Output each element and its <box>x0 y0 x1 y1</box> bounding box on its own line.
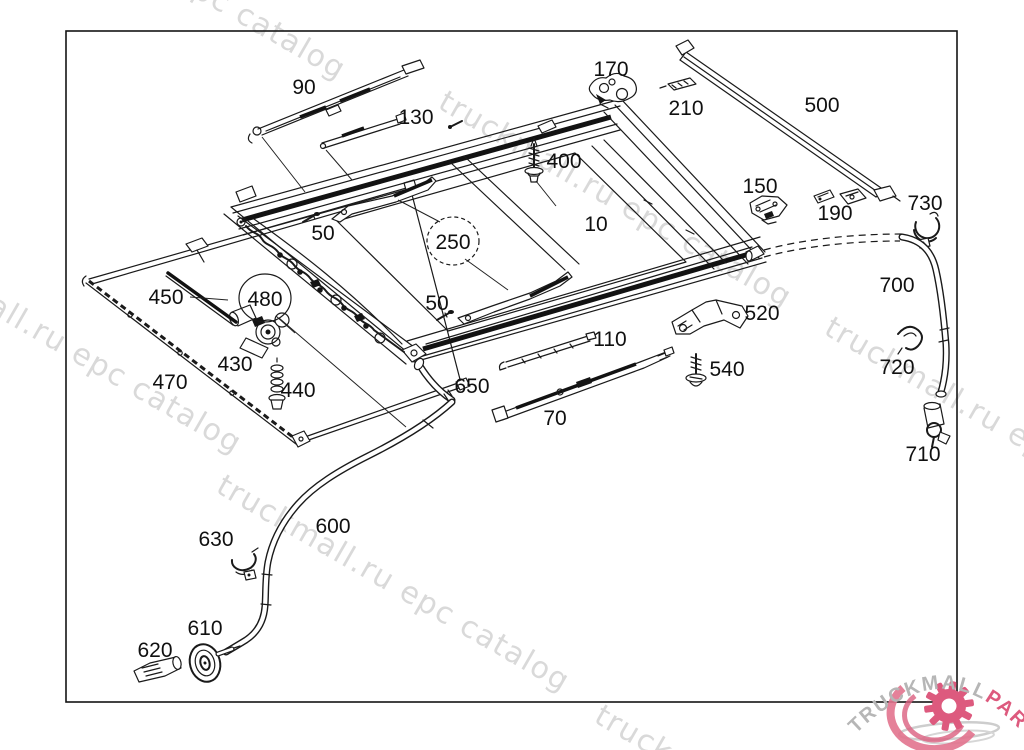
part-720-clip <box>898 327 922 354</box>
exploded-diagram: 90 130 170 210 500 400 150 190 730 10 50… <box>0 0 1024 750</box>
part-520-bracket <box>672 300 748 334</box>
label-170: 170 <box>593 58 628 81</box>
logo-text-accent: PARTS <box>0 0 1024 733</box>
part-430-motor <box>228 305 289 358</box>
parts-catalog-page: truckmall.ru epc catalog truckmall.ru ep… <box>0 0 1024 750</box>
label-400: 400 <box>546 150 581 173</box>
label-470: 470 <box>152 371 187 394</box>
label-720: 720 <box>879 356 914 379</box>
label-480: 480 <box>247 288 282 311</box>
label-50-upper: 50 <box>311 222 334 245</box>
part-130-rail <box>321 113 407 149</box>
part-630-clamp <box>232 548 258 580</box>
part-210-clip <box>660 78 696 90</box>
label-250: 250 <box>435 231 470 254</box>
part-710-connector <box>924 403 950 448</box>
label-650: 650 <box>454 375 489 398</box>
logo-text: TRUCKMALLPARTS <box>0 0 1024 737</box>
label-70: 70 <box>543 407 566 430</box>
label-10: 10 <box>584 213 607 236</box>
label-500: 500 <box>804 94 839 117</box>
label-600: 600 <box>315 515 350 538</box>
label-90: 90 <box>292 76 315 99</box>
label-50-lower: 50 <box>425 292 448 315</box>
label-710: 710 <box>905 443 940 466</box>
part-110-strip <box>500 332 597 370</box>
label-700: 700 <box>879 274 914 297</box>
part-500-deflector-bar <box>676 40 900 201</box>
label-450: 450 <box>148 286 183 309</box>
label-440: 440 <box>280 379 315 402</box>
label-210: 210 <box>668 97 703 120</box>
label-190: 190 <box>817 202 852 225</box>
cable-guide-upper <box>332 177 436 222</box>
label-620: 620 <box>137 639 172 662</box>
label-130: 130 <box>398 106 433 129</box>
label-150: 150 <box>742 175 777 198</box>
part-400-screw <box>525 138 543 182</box>
label-520: 520 <box>744 302 779 325</box>
part-610-grommet <box>186 641 240 685</box>
label-430: 430 <box>217 353 252 376</box>
part-650-elbow-hose <box>413 357 452 400</box>
label-730: 730 <box>907 192 942 215</box>
label-540: 540 <box>709 358 744 381</box>
part-90-guide-rail <box>248 60 424 143</box>
label-110: 110 <box>593 328 626 351</box>
part-labels: 90 130 170 210 500 400 150 190 730 10 50… <box>137 58 942 662</box>
label-610: 610 <box>187 617 222 640</box>
part-540-screw <box>686 354 706 386</box>
label-630: 630 <box>198 528 233 551</box>
part-150-bracket <box>750 196 787 224</box>
